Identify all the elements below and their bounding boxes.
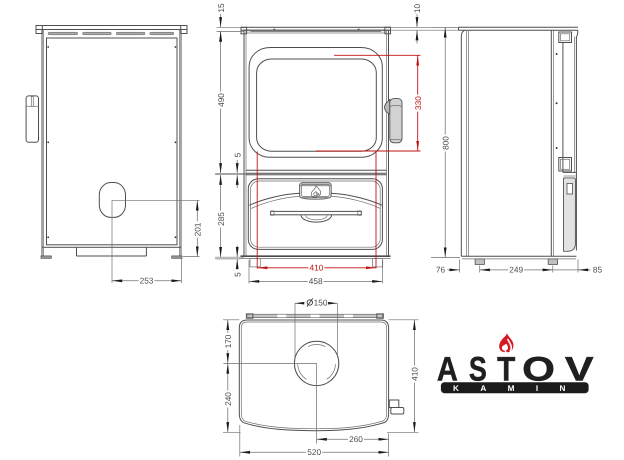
svg-text:253: 253	[140, 276, 154, 286]
svg-text:85: 85	[593, 265, 603, 275]
svg-text:240: 240	[223, 392, 233, 406]
svg-text:201: 201	[193, 222, 203, 236]
svg-text:5: 5	[232, 272, 242, 277]
svg-text:330: 330	[413, 96, 423, 110]
svg-text:410: 410	[410, 367, 420, 381]
svg-text:150: 150	[314, 298, 328, 308]
svg-text:15: 15	[216, 3, 226, 13]
svg-text:260: 260	[349, 434, 363, 444]
svg-text:5: 5	[232, 152, 242, 157]
svg-text:10: 10	[412, 4, 422, 14]
svg-text:490: 490	[216, 93, 226, 107]
svg-text:458: 458	[309, 276, 323, 286]
svg-text:520: 520	[307, 447, 321, 457]
svg-text:76: 76	[436, 265, 446, 275]
svg-text:410: 410	[309, 263, 323, 273]
svg-text:KAMIN: KAMIN	[453, 384, 587, 393]
svg-text:170: 170	[223, 334, 233, 348]
svg-text:249: 249	[509, 265, 523, 275]
svg-text:285: 285	[216, 212, 226, 226]
svg-text:800: 800	[440, 136, 450, 150]
